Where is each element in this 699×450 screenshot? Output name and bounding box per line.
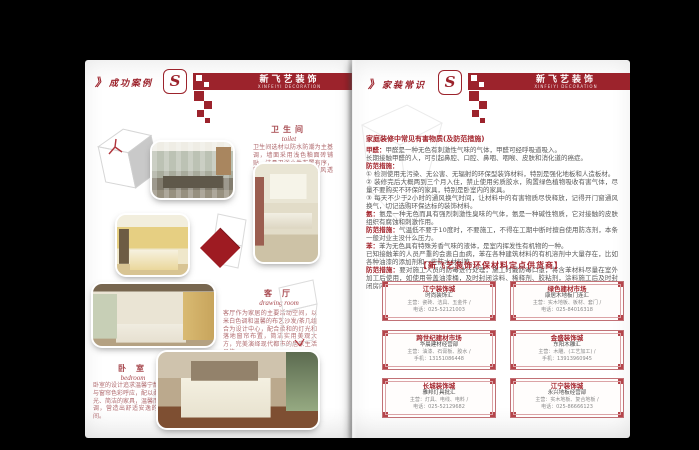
suppliers-heading: 【新飞艺装饰环保材料定点供货商】 xyxy=(352,260,630,271)
article-line: 甲醛：甲醛是一种无色有刺激性气味的气体，甲醛可经呼吸道吸入。 xyxy=(366,146,618,154)
supplier-card: 江宁装饰城 永兴地板经营部 主营：实木地板、复合地板 / 电话：025-8666… xyxy=(510,378,624,418)
red-cube-icon xyxy=(198,212,250,272)
mosaic-square xyxy=(197,110,204,117)
photo-bedroom-small xyxy=(117,215,188,275)
photo-bathroom xyxy=(255,164,318,262)
page-spine xyxy=(347,60,357,438)
section-marker: 》 xyxy=(95,77,106,89)
right-page: 》家装常识 S 新飞艺装饰 XINFEIYI DECORATION 家庭装修中常… xyxy=(352,60,630,438)
article-line: 苯：苯为无色具有特殊芳香气味的液体，是室内挥发性有机物的一种。 xyxy=(366,242,618,250)
mosaic-square xyxy=(471,75,477,81)
photo-bedroom-large xyxy=(158,352,318,428)
article-title: 家庭装修中常见有害物质(及防范措施) xyxy=(366,134,484,144)
photo-living-room-small xyxy=(152,142,233,198)
supplier-card: 绿色建材市场 康居木地板门连汇 主营：实木地板、板材、套门 / 电话：025-8… xyxy=(510,281,624,321)
brand-banner: 新飞艺装饰 XINFEIYI DECORATION xyxy=(193,73,352,90)
left-page: 》成功案例 S 新飞艺装饰 XINFEIYI DECORATION 卫生间 to… xyxy=(85,60,352,438)
brand-name-en: XINFEIYI DECORATION xyxy=(227,85,352,89)
brochure-spread: 》成功案例 S 新飞艺装饰 XINFEIYI DECORATION 卫生间 to… xyxy=(0,0,699,450)
mosaic-square xyxy=(196,75,202,81)
supplier-card: 长城装饰城 雅邦灯具批汇 主营：灯具、电线、电料 / 电话：025-521296… xyxy=(382,378,496,418)
mosaic-square xyxy=(479,82,484,87)
supplier-card: 金盛装饰城 东阳木雕汇 主营：木雕、(工艺加工) / 手机：1391396094… xyxy=(510,330,624,370)
left-section-title: 》成功案例 xyxy=(95,74,153,90)
right-section-title: 》家装常识 xyxy=(368,76,426,92)
mosaic-square xyxy=(204,101,212,109)
mosaic-square xyxy=(194,91,204,101)
supplier-card: 江宁装饰城 时尚装饰汇 主营：瓷砖、洁具、五金件 / 电话：025-521210… xyxy=(382,281,496,321)
mosaic-square xyxy=(479,101,487,109)
brand-logo-icon: S xyxy=(438,70,462,95)
supplier-card: 跨世纪建材市场 华晨建材经营部 主营：油漆、石膏板、胶水 / 手机：131510… xyxy=(382,330,496,370)
mosaic-square xyxy=(469,91,479,101)
article-line: ② 装修完后大概两到三个月入住，禁止使用劣质胶水，购置绿色植物吸收有害气体，尽量… xyxy=(366,178,618,194)
mosaic-square xyxy=(205,118,210,123)
mosaic-square xyxy=(480,118,485,123)
article-line: ③ 每天不少于2小时的通风换气时间，让材料中的有害物质尽快释放，记得开门窗通风换… xyxy=(366,194,618,210)
wireframe-cube-icon xyxy=(273,278,321,356)
brand-banner: 新飞艺装饰 XINFEIYI DECORATION xyxy=(468,73,630,90)
section-marker: 》 xyxy=(368,79,379,91)
room-label-bedroom: 卧 室 bedroom xyxy=(101,363,165,382)
mosaic-square xyxy=(204,82,209,87)
mosaic-square xyxy=(472,110,479,117)
room-label-toilet: 卫生间 toilet xyxy=(245,124,333,143)
article-line: 防范措施： xyxy=(366,162,618,170)
article-line: 氨：氨是一种无色而具有强烈刺激性臭味的气体，氨是一种碱性物质，它对接触的皮肤组织… xyxy=(366,210,618,226)
article-line: 防范措施：气温低不要于10度时，不要施工，不得在工期中断时擅自使用防冻剂，本条一… xyxy=(366,226,618,242)
article-line: 长期接触甲醛的人，可引起鼻腔、口腔、鼻咽、咽喉、皮肤和消化道的癌症。 xyxy=(366,154,618,162)
article-line: ① 检测使用无污染、无公害、无辐射的环保型装饰材料，特别是强化地板和人造板材。 xyxy=(366,170,618,178)
brand-logo-icon: S xyxy=(163,69,187,94)
brand-name-en: XINFEIYI DECORATION xyxy=(502,85,630,89)
photo-living-room-large xyxy=(93,284,214,346)
